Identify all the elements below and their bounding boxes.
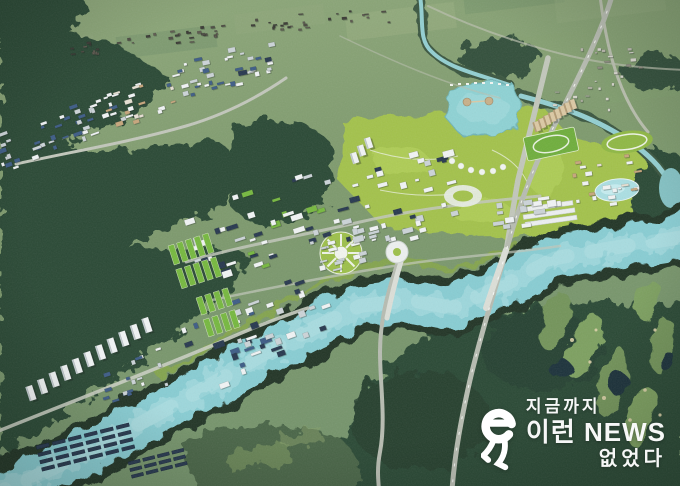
watermark-line2: 이런 NEWS <box>526 419 666 446</box>
aerial-city-render: 지금까지 이런 NEWS 없었다 <box>0 0 680 486</box>
watermark-line1: 지금까지 <box>526 398 601 416</box>
news-watermark: 지금까지 이런 NEWS 없었다 <box>481 398 666 480</box>
watermark-line3: 없었다 <box>599 449 666 470</box>
watermark-text: 지금까지 이런 NEWS 없었다 <box>526 398 666 470</box>
e-runner-logo-icon <box>481 404 517 480</box>
